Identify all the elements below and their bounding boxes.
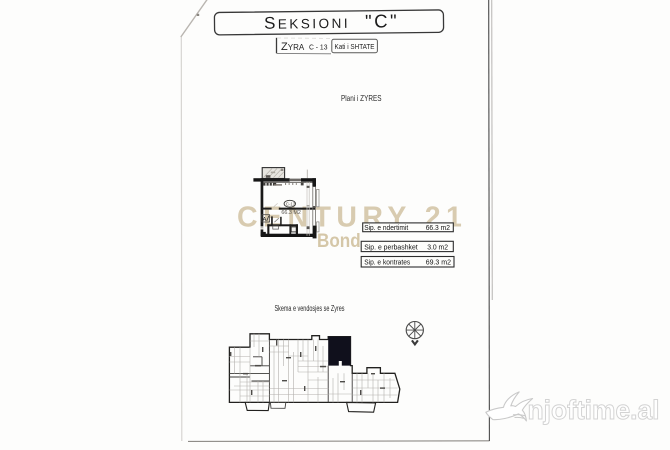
- svg-text:66.3 M2: 66.3 M2: [281, 210, 300, 216]
- svg-text:69.3 m2: 69.3 m2: [426, 258, 451, 267]
- svg-text:Sip. e ndertimit: Sip. e ndertimit: [364, 223, 409, 232]
- svg-text:Sip. e perbashket: Sip. e perbashket: [364, 242, 418, 251]
- svg-text:Sip. e kontrates: Sip. e kontrates: [364, 258, 410, 267]
- svg-text:ZYRA: ZYRA: [281, 41, 305, 53]
- svg-text:Skema e vendosjes se Zyres: Skema e vendosjes se Zyres: [275, 304, 345, 313]
- svg-text:C-13: C-13: [286, 202, 296, 207]
- svg-text:Plani i ZYRES: Plani i ZYRES: [341, 94, 382, 103]
- svg-text:Kati i SHTATE: Kati i SHTATE: [335, 42, 375, 51]
- svg-text:66.3 m2: 66.3 m2: [426, 223, 450, 232]
- svg-text:A: A: [263, 217, 267, 223]
- svg-text:njoftime.al: njoftime.al: [528, 395, 660, 425]
- svg-text:C - 13: C - 13: [309, 43, 328, 52]
- svg-text:Bond: Bond: [317, 230, 361, 251]
- svg-text:3.0 m2: 3.0 m2: [427, 242, 448, 251]
- svg-text:SEKSIONI"C": SEKSIONI"C": [264, 10, 399, 33]
